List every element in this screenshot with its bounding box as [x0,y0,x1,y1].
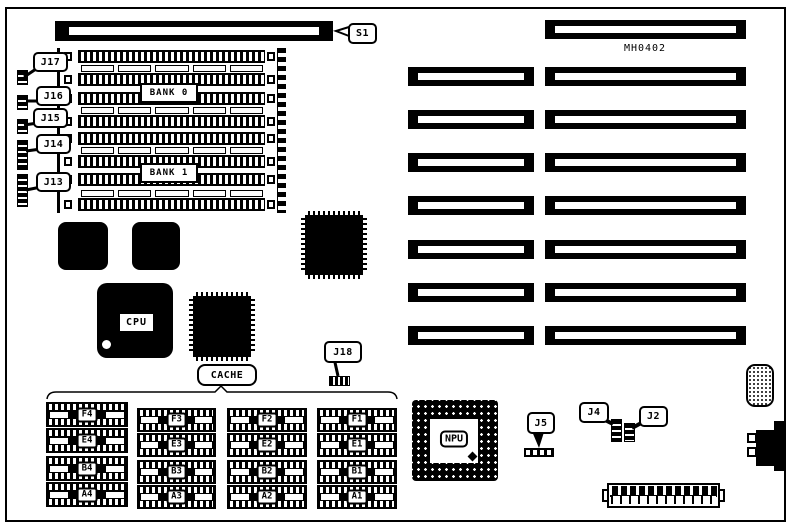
simm-socket-row [78,50,265,63]
jumper-j16 [17,95,28,110]
expansion-slot [545,110,746,129]
expansion-slot [545,67,746,86]
cache-controller-chip [189,292,255,361]
npu-socket-center: NPU [430,419,478,463]
cache-chip-E1: E1 [317,433,397,457]
oscillator-component [746,364,774,407]
j2-label: J2 [647,411,660,422]
expansion-slot [408,196,534,215]
j14-label: J14 [44,139,64,150]
cache-chip-label: E3 [166,438,187,453]
j5-connector [524,448,554,457]
cache-chip-F4: F4 [46,402,128,427]
simm-clip [64,200,72,209]
simm-clip [267,200,275,209]
cache-chip-label: B1 [347,465,368,480]
simm-clip [267,175,275,184]
j13-callout: J13 [36,172,71,192]
cpu-pin1-dot [102,340,111,349]
cache-chip-label: E2 [257,438,278,453]
cache-chip-label: B4 [77,461,98,476]
asic-chip-2 [132,222,180,270]
cache-chip-label: F4 [77,407,98,422]
expansion-slot [408,110,534,129]
j15-label: J15 [41,113,61,124]
cache-chip-label: A1 [347,490,368,505]
cache-chip-A1: A1 [317,485,397,509]
cache-chip-label: F2 [257,413,278,428]
s1-callout: S1 [348,23,377,44]
cache-chip-label: A2 [257,490,278,505]
j13-label: J13 [44,177,64,188]
simm-spacer-row [81,65,263,72]
j4-callout: J4 [579,402,609,423]
jumper-j15 [17,119,28,134]
expansion-slot [545,196,746,215]
simm-clip [267,94,275,103]
cache-chip-E3: E3 [137,433,216,457]
cpu-label: CPU [118,312,155,333]
cache-chip-label: B3 [166,465,187,480]
j18-label: J18 [333,347,353,358]
qfp-chip-upper [301,211,367,279]
j15-callout: J15 [33,108,68,128]
cache-chip-B2: B2 [227,460,307,484]
cache-chip-F3: F3 [137,408,216,432]
simm-right-rail [277,48,286,213]
j2-callout: J2 [639,406,668,427]
expansion-slot [545,326,746,345]
simm-socket-row [78,132,265,145]
jumper-j14 [17,140,28,170]
simm-clip [267,75,275,84]
simm-clip [267,157,275,166]
cache-chip-B3: B3 [137,460,216,484]
expansion-slot [545,153,746,172]
j18-connector [329,376,350,386]
simm-clip [64,75,72,84]
din-tab-1 [747,433,757,443]
j17-callout: J17 [33,52,68,72]
s1-slot-bar [55,21,333,41]
cpu-text: CPU [126,317,147,328]
j5-label: J5 [534,418,547,429]
j5-callout: J5 [527,412,555,434]
cache-chip-label: B2 [257,465,278,480]
j18-callout: J18 [324,341,362,363]
j17-label: J17 [41,57,61,68]
expansion-slot [408,326,534,345]
cache-chip-A3: A3 [137,485,216,509]
simm-socket-row [78,115,265,128]
j4-jumper [611,419,622,442]
j2-jumper [624,423,635,442]
npu-pin1-marker [468,452,478,462]
simm-spacer-row [81,147,263,154]
keyboard-din-connector [756,430,780,466]
simm-clip [64,157,72,166]
simm-clip [267,134,275,143]
bank0-text: BANK 0 [150,88,189,98]
cache-callout: CACHE [197,364,257,386]
npu-text: NPU [445,433,463,444]
simm-clip [267,117,275,126]
cpu-chip: CPU [97,283,173,358]
simm-spacer-row [81,107,263,114]
cache-chip-label: E4 [77,433,98,448]
simm-clip [267,52,275,61]
j16-label: J16 [44,91,64,102]
asic-chip-1 [58,222,108,270]
cache-chip-label: F1 [347,413,368,428]
j16-callout: J16 [36,86,71,106]
simm-spacer-row [81,190,263,197]
expansion-slot [408,283,534,302]
cache-chip-B4: B4 [46,456,128,481]
motherboard-diagram: S1 J17 J16 J15 J14 J13 BANK 0 BANK 1 MH0… [0,0,791,527]
cache-chip-E4: E4 [46,428,128,453]
j14-callout: J14 [36,134,71,154]
npu-label: NPU [440,430,468,447]
cache-text: CACHE [211,370,244,381]
cache-chip-F2: F2 [227,408,307,432]
expansion-slot [545,240,746,259]
expansion-slot [545,283,746,302]
expansion-slot [545,20,746,39]
jumper-j13 [17,174,28,207]
power-connector-sockets [611,495,716,504]
cache-chip-A2: A2 [227,485,307,509]
cache-chip-E2: E2 [227,433,307,457]
expansion-slot [408,240,534,259]
expansion-slot [408,153,534,172]
bank0-label: BANK 0 [140,83,198,103]
cache-chip-label: A4 [77,487,98,502]
jumper-j17 [17,70,28,85]
din-tab-2 [747,447,757,457]
cache-chip-A4: A4 [46,482,128,507]
npu-socket: NPU [412,400,498,481]
bank1-label: BANK 1 [140,163,198,183]
s1-label: S1 [356,28,369,39]
cache-chip-label: F3 [166,413,187,428]
part-number-text: MH0402 [600,43,690,54]
simm-bank-block: BANK 0 BANK 1 [57,48,285,213]
power-connector [607,483,720,508]
cache-chip-B1: B1 [317,460,397,484]
cache-chip-label: E1 [347,438,368,453]
simm-socket-row [78,198,265,211]
cache-chip-F1: F1 [317,408,397,432]
bank1-text: BANK 1 [150,168,189,178]
expansion-slot [408,67,534,86]
cache-chip-label: A3 [166,490,187,505]
j4-label: J4 [587,407,600,418]
